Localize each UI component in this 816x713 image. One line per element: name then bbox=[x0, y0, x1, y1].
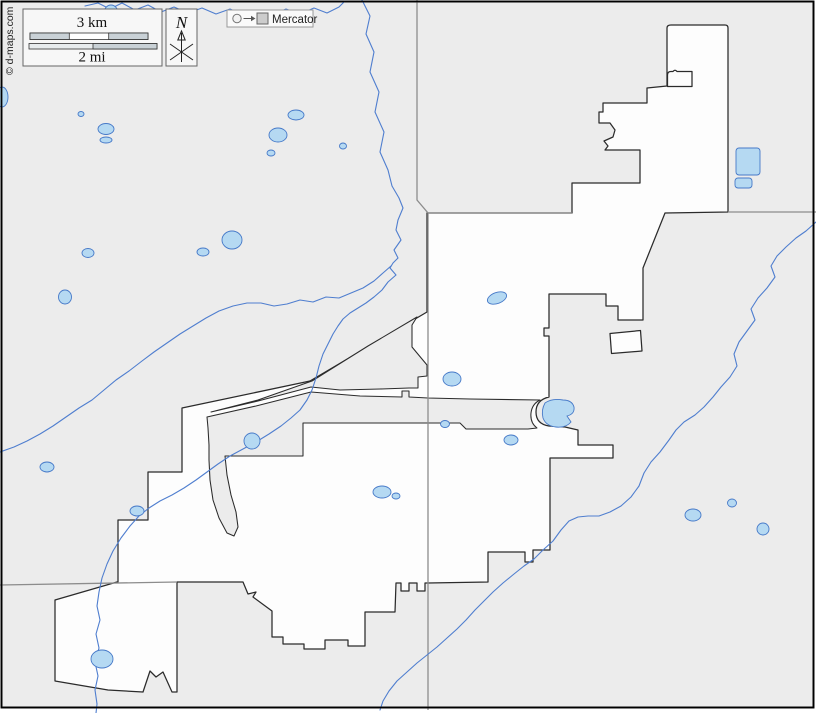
scale-bar-mi bbox=[29, 44, 157, 50]
lake bbox=[78, 112, 84, 117]
scale-bar-km bbox=[30, 33, 148, 40]
exclave-north-parcel bbox=[668, 70, 693, 86]
lake bbox=[392, 493, 400, 499]
lake bbox=[443, 372, 461, 386]
lake bbox=[244, 433, 260, 449]
lake bbox=[98, 124, 114, 135]
lake bbox=[82, 249, 94, 258]
projection-legend: Mercator bbox=[227, 10, 318, 27]
lake bbox=[757, 523, 769, 535]
lake bbox=[269, 128, 287, 142]
lake bbox=[441, 421, 450, 428]
map-page: 3 km 2 mi N Mercator © bbox=[0, 0, 816, 713]
lake bbox=[40, 462, 54, 472]
lake bbox=[222, 231, 242, 249]
lake bbox=[267, 150, 275, 156]
scale-mi-label: 2 mi bbox=[78, 50, 105, 66]
compass-north-label: N bbox=[175, 13, 189, 32]
lake bbox=[685, 509, 701, 521]
compass: N bbox=[166, 9, 197, 66]
scale-bar: 3 km 2 mi bbox=[23, 9, 162, 66]
lake bbox=[130, 506, 144, 516]
lake bbox=[100, 137, 112, 143]
attribution-text: © d-maps.com bbox=[4, 6, 16, 75]
lake bbox=[542, 399, 574, 427]
projection-label: Mercator bbox=[272, 14, 318, 26]
flat-map-square-icon bbox=[257, 13, 268, 24]
blank-city-map: 3 km 2 mi N Mercator © bbox=[0, 0, 816, 713]
scale-km-label: 3 km bbox=[77, 15, 108, 31]
lake bbox=[736, 148, 760, 175]
lake bbox=[91, 650, 113, 668]
lake bbox=[340, 143, 347, 149]
lake bbox=[735, 178, 752, 188]
lake bbox=[288, 110, 304, 120]
exclave-east-parcel bbox=[610, 331, 642, 354]
lake bbox=[59, 290, 72, 304]
globe-circle-icon bbox=[233, 14, 241, 22]
lake bbox=[373, 486, 391, 498]
lake bbox=[728, 499, 737, 507]
lake bbox=[504, 435, 518, 445]
lake bbox=[197, 248, 209, 256]
